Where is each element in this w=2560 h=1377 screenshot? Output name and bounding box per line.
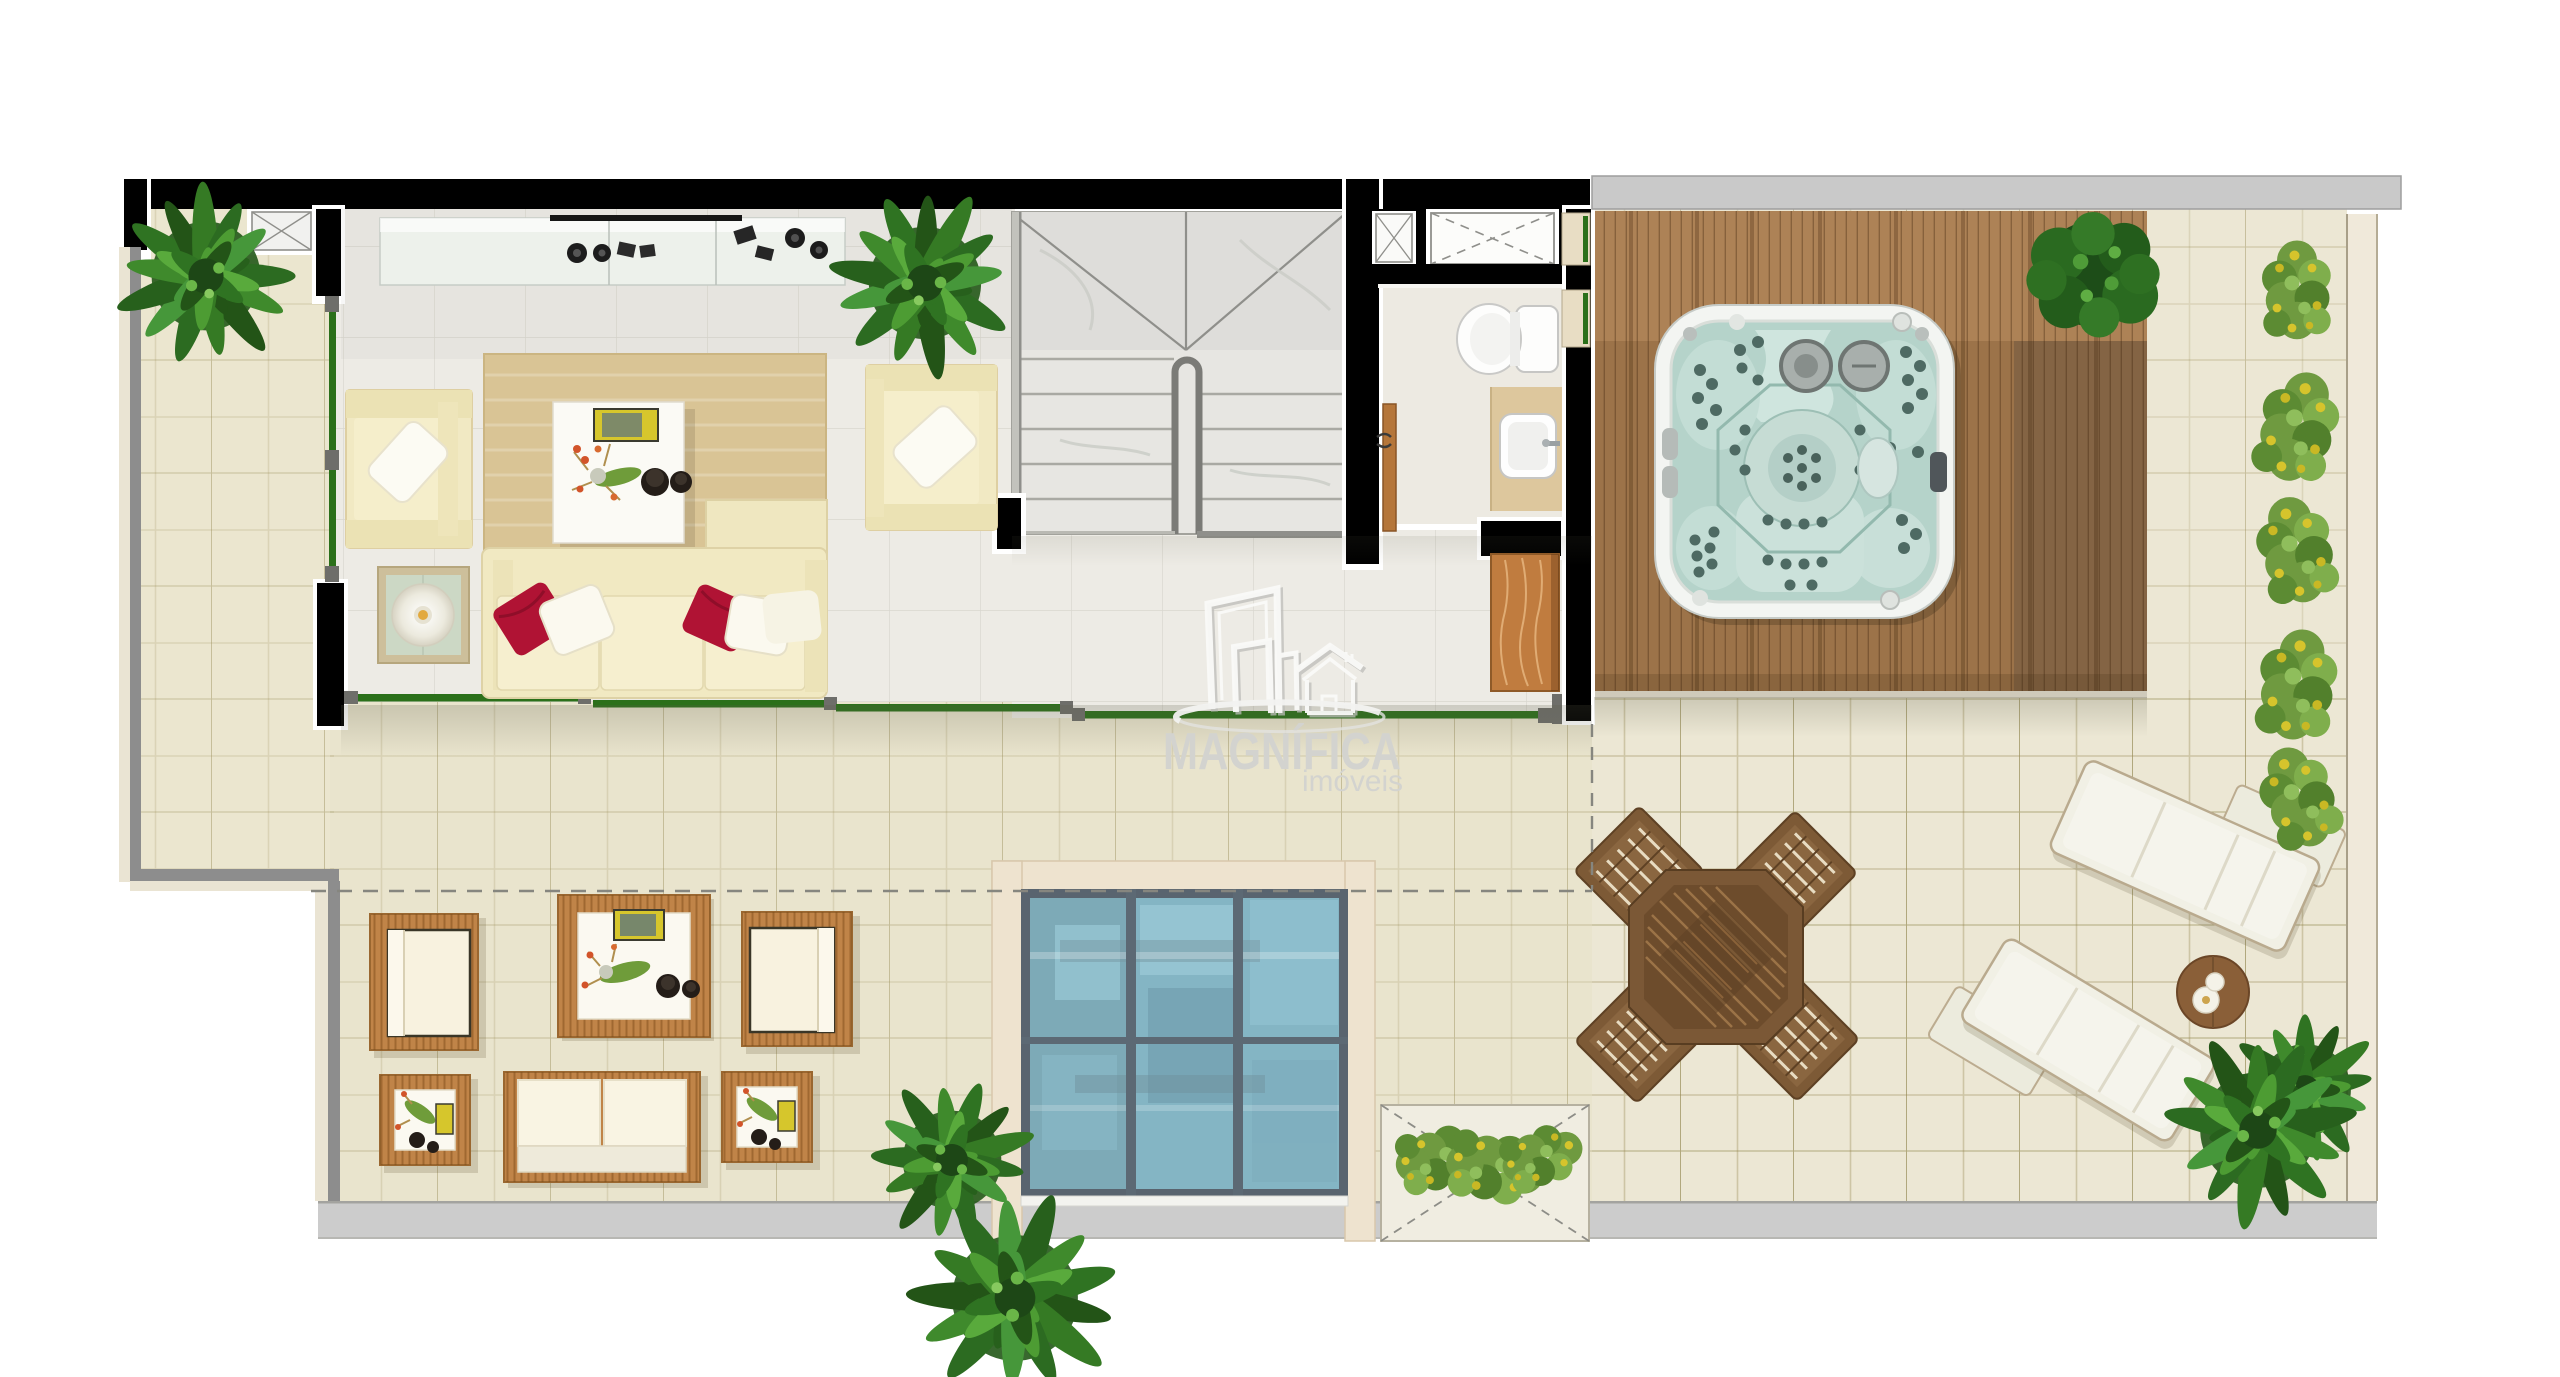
svg-text:imóveis: imóveis <box>1302 765 1403 798</box>
